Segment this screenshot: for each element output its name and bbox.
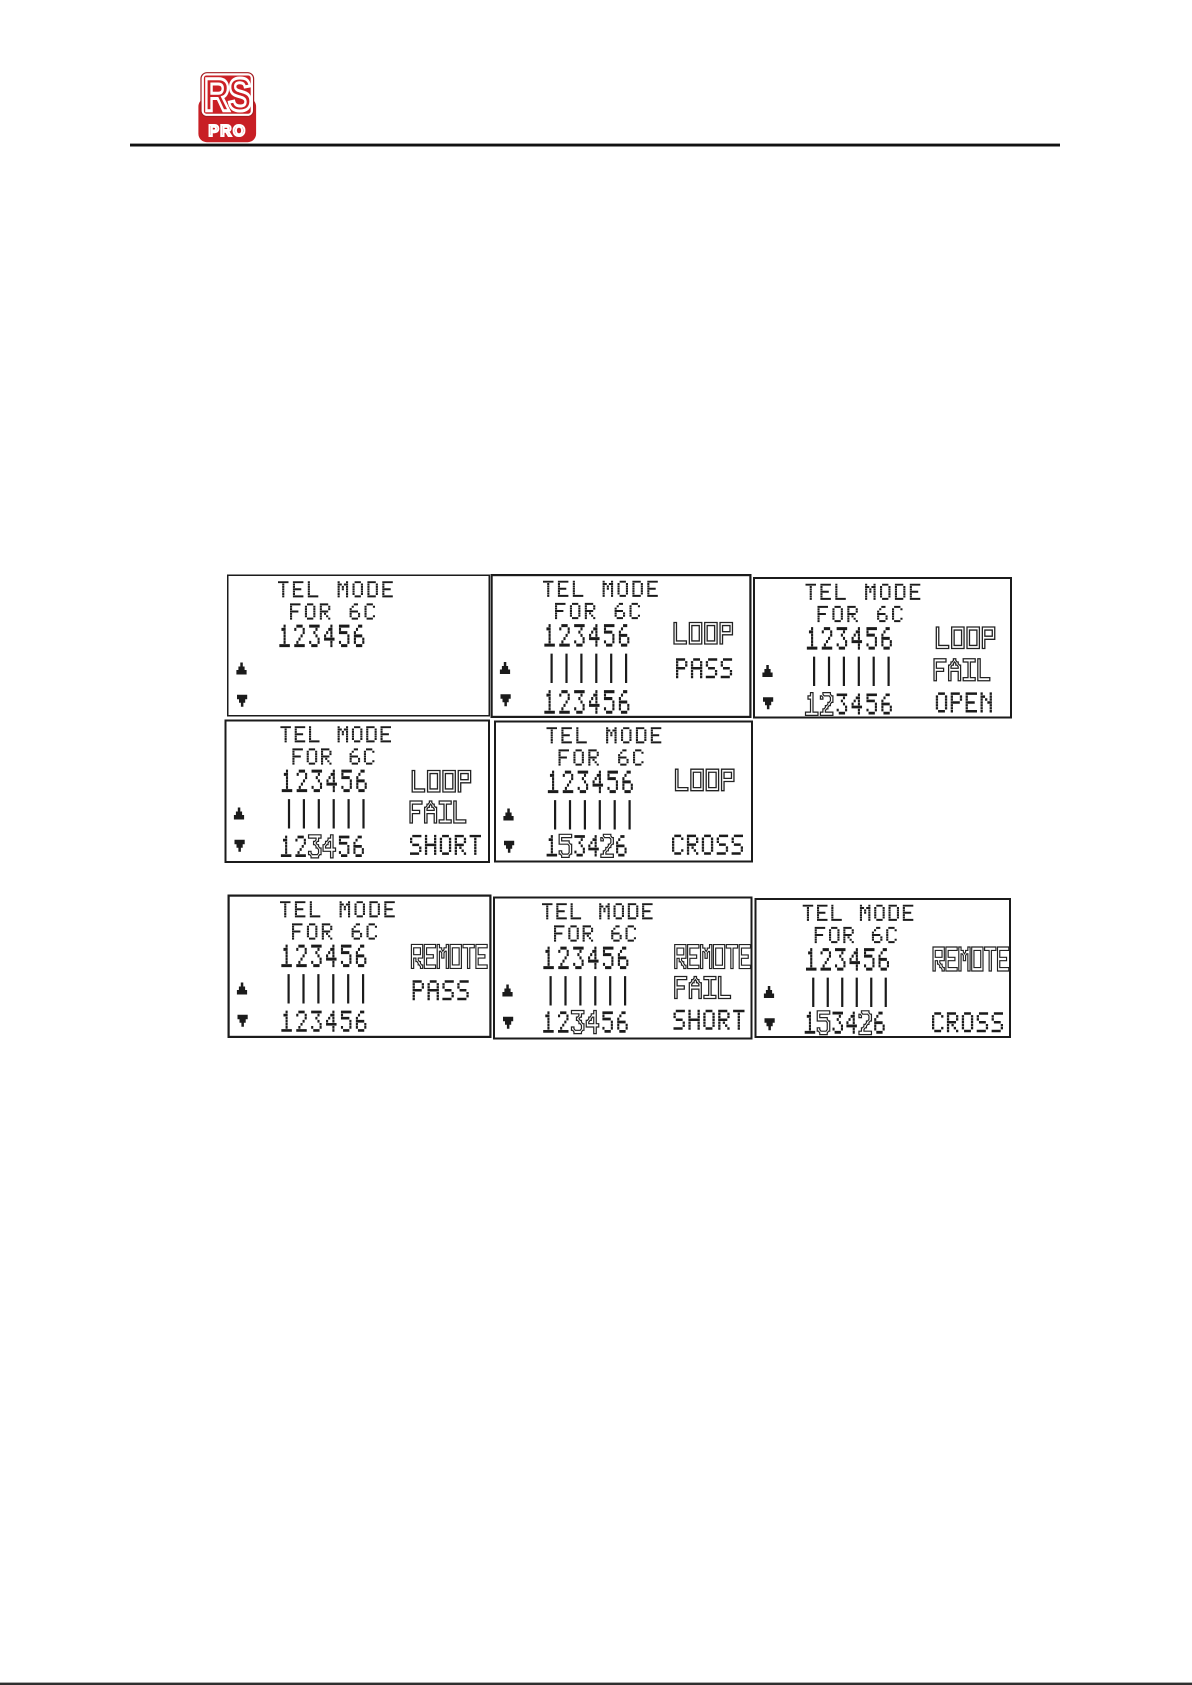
svg-text:PRO: PRO [208, 123, 246, 140]
svg-text:RS: RS [204, 69, 251, 120]
